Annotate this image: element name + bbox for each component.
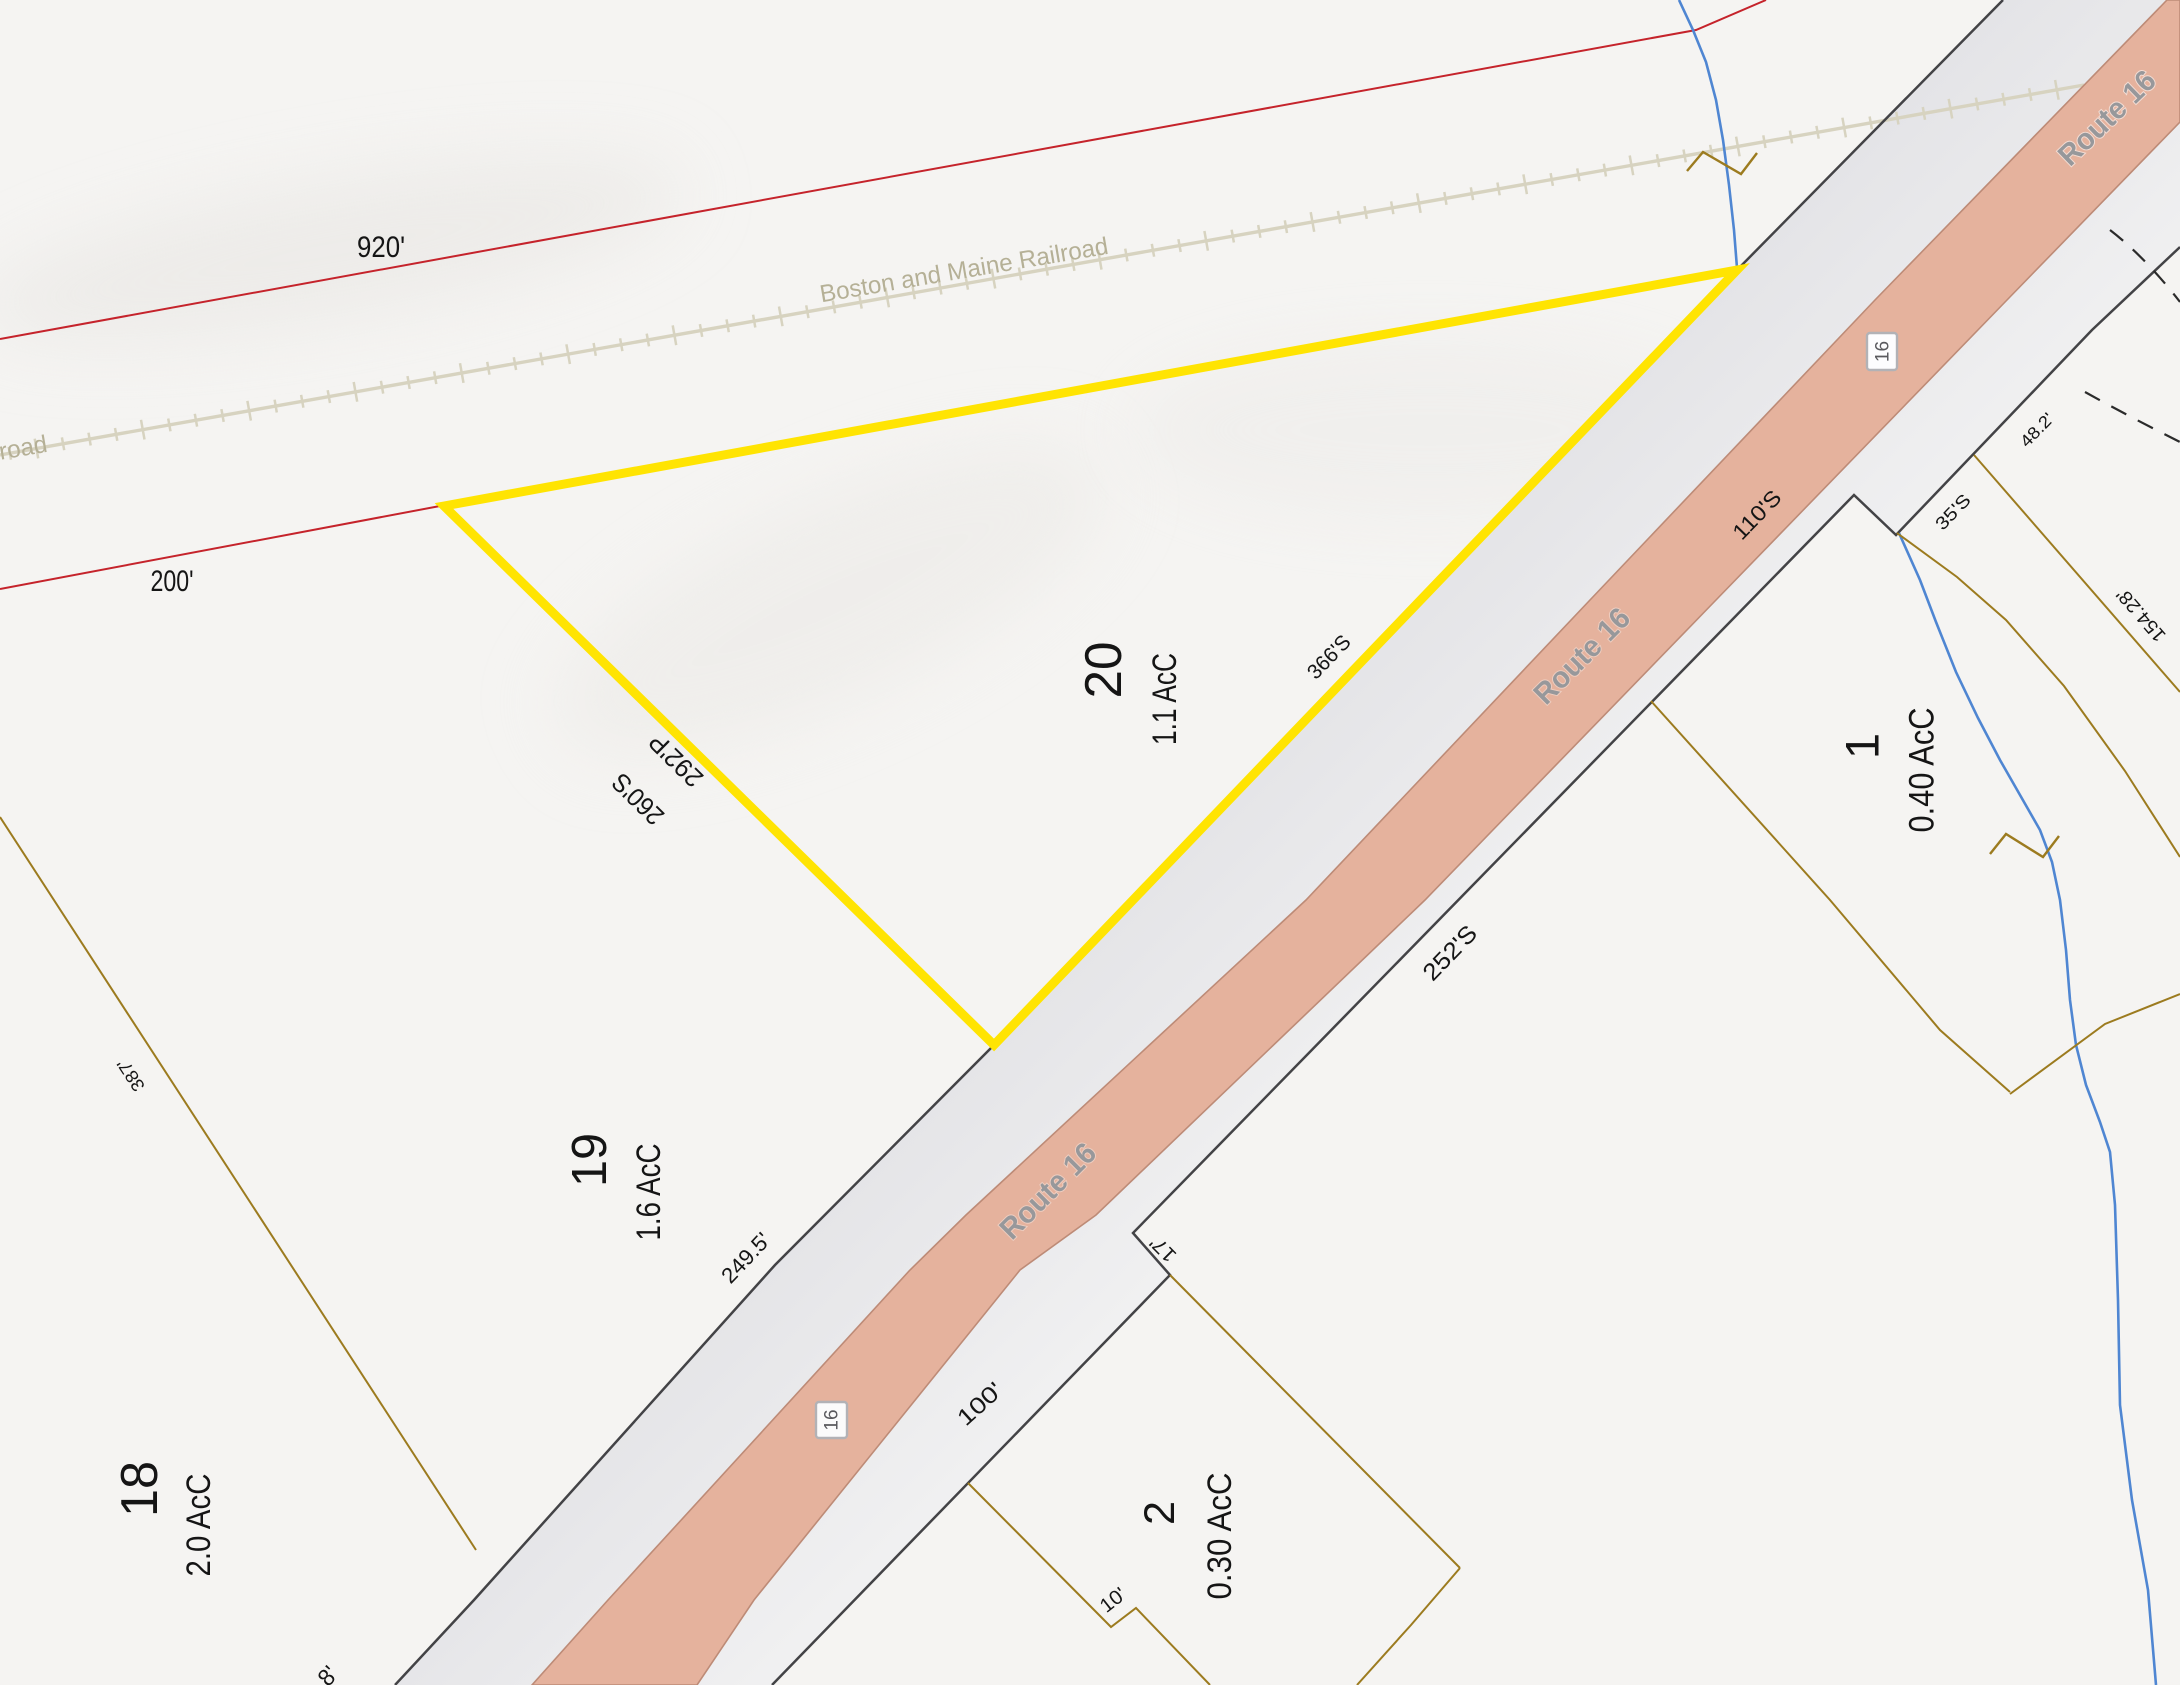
svg-text:1: 1	[1836, 733, 1889, 759]
svg-text:16: 16	[821, 1409, 842, 1430]
svg-text:200': 200'	[151, 565, 194, 598]
svg-text:19: 19	[563, 1133, 617, 1187]
svg-text:0.30 AcC: 0.30 AcC	[1201, 1473, 1239, 1600]
svg-text:1.6 AcC: 1.6 AcC	[630, 1144, 668, 1241]
svg-text:920': 920'	[357, 231, 405, 264]
svg-text:20: 20	[1075, 642, 1133, 699]
svg-text:0.40 AcC: 0.40 AcC	[1903, 708, 1942, 833]
svg-text:1.1 AcC: 1.1 AcC	[1146, 653, 1184, 745]
svg-text:2.0 AcC: 2.0 AcC	[180, 1474, 218, 1577]
svg-text:2: 2	[1136, 1501, 1184, 1525]
svg-text:16: 16	[1872, 341, 1893, 362]
svg-text:18: 18	[111, 1461, 169, 1517]
